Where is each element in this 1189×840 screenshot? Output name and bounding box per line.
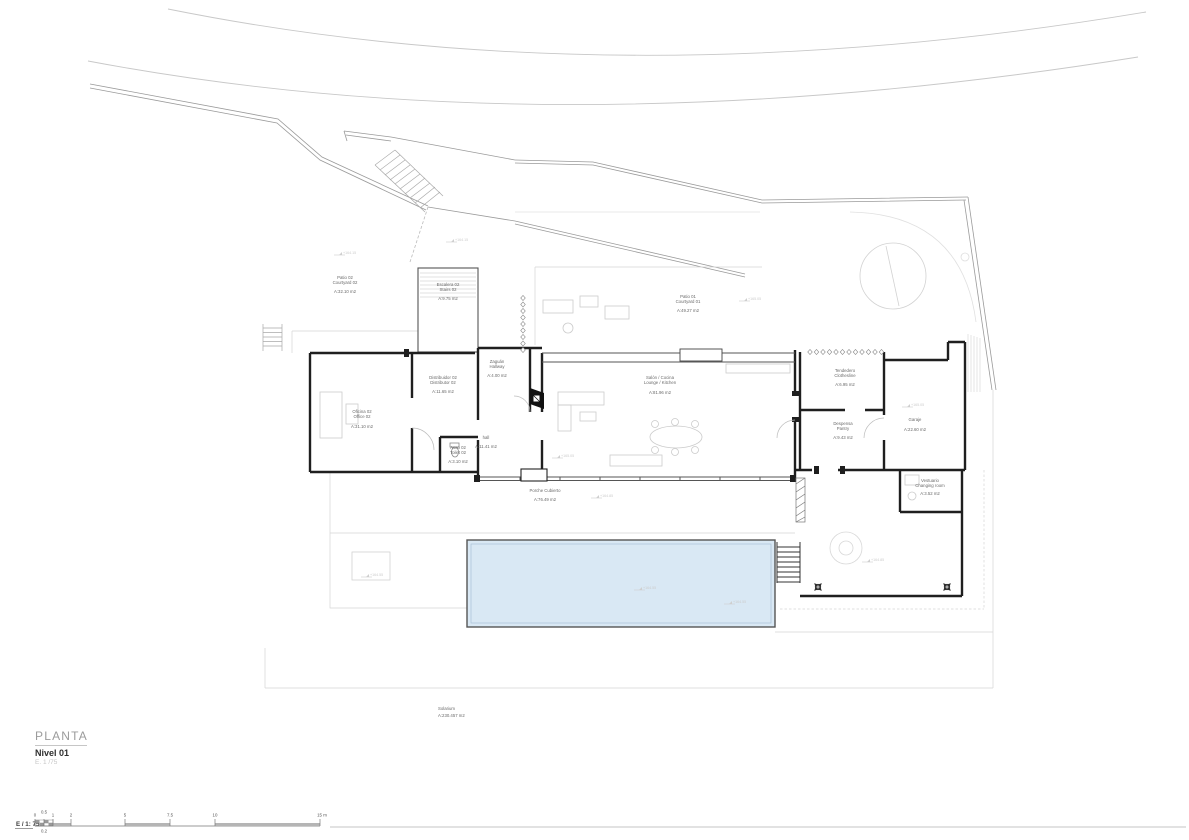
room-label-distribuidor-02: Distribuidor 02 Distributor 02 A:11.65 m… [429, 375, 457, 394]
room-label-aseo-02: Aseo 02 Toilet 02 A:3.10 m2 [448, 445, 468, 464]
room-name-en: Office 02 [353, 414, 371, 419]
plan-series-title: PLANTA [35, 729, 87, 746]
title-block: PLANTA Nivel 01 E. 1 /75 [35, 729, 155, 766]
door-jambs [404, 349, 845, 482]
hedge-hatch [968, 334, 980, 392]
level-marker-text: +165.05 [748, 297, 761, 301]
level-marker-text: +164.55 [733, 600, 746, 604]
room-name-en: Lounge / Kitchen [644, 380, 677, 385]
room-label-escalera-02: Escalera 02 Stairs 02 A:9.75 m2 [437, 282, 460, 301]
exterior-stairs-top [375, 150, 443, 212]
fence-chain-vertical [521, 295, 526, 352]
scale-tick: 15 m [317, 813, 327, 818]
site-contour-lines [88, 9, 1146, 105]
scale-tick: 0 [34, 813, 37, 818]
scale-tick: 5 [124, 813, 127, 818]
room-name-en: Toilet 02 [450, 450, 467, 455]
porch-step-block [521, 469, 547, 481]
level-marker-text: +164.85 [871, 558, 884, 562]
room-area: A:49.27 m2 [677, 308, 700, 313]
room-name: Garaje [909, 417, 923, 422]
room-label-patio-01: Patio 01 Courtyard 01 A:49.27 m2 [676, 294, 701, 313]
stairs-02-room [418, 268, 478, 352]
paving-flower-symbol [813, 582, 823, 592]
scale-sub-tick: 0.2 [41, 829, 48, 834]
hatched-wall-section [796, 478, 805, 522]
room-name-en: Courtyard 02 [333, 280, 358, 285]
room-name-en: Pantry [837, 426, 850, 431]
room-area: A:9.43 m2 [833, 435, 853, 440]
room-label-oficina-02: Oficina 02 Office 02 A:31.10 m2 [351, 409, 374, 429]
level-marker-text: +165.05 [911, 403, 924, 407]
room-area: A:11.41 m2 [475, 444, 497, 449]
room-area: A:4.00 m2 [487, 373, 507, 378]
scale-bar: E / 1: 75 0 0.5 1 2 5 7.5 10 [15, 810, 1186, 834]
room-name-en: Distributor 02 [430, 380, 456, 385]
level-marker-text: +164.55 [370, 573, 383, 577]
room-area: A:3.52 m2 [920, 491, 940, 496]
room-name-en: Changing room [915, 483, 945, 488]
room-label-solarium: Solarium A:230.457 m2 [438, 706, 465, 718]
tree-symbol [850, 212, 976, 322]
level-marker-text: +164.85 [600, 494, 613, 498]
room-area: A:9.75 m2 [438, 296, 458, 301]
room-area: A:230.457 m2 [438, 713, 465, 718]
room-label-tendedero: Tendedero Clothesline A:6.95 m2 [834, 368, 856, 387]
left-courtyard-stairs [263, 324, 282, 351]
furniture [320, 296, 919, 580]
room-label-salon-cocina: Salón / Cocina Lounge / Kitchen A:81.96 … [644, 375, 677, 395]
room-name: hall [483, 435, 490, 440]
drawing-sheet: +164.15 +164.15 +165.05 +165.05 +165.05 … [0, 0, 1189, 840]
room-label-vestuario: Vestuario Changing room A:3.52 m2 [915, 478, 945, 496]
room-label-zaguan: Zaguán Hallway A:4.00 m2 [487, 359, 507, 378]
room-labels: Patio 02 Courtyard 02 A:32.10 m2 Escaler… [333, 275, 946, 718]
room-label-patio-02: Patio 02 Courtyard 02 A:32.10 m2 [333, 275, 358, 294]
room-name-en: Courtyard 01 [676, 299, 701, 304]
room-area: A:6.95 m2 [835, 382, 855, 387]
room-area: A:81.96 m2 [649, 390, 672, 395]
level-marker-text: +165.05 [561, 454, 574, 458]
scale-tick: 7.5 [167, 813, 174, 818]
terrain-retaining-walls [90, 84, 515, 262]
room-name-en: Clothesline [834, 373, 856, 378]
terrace-stairs [777, 542, 800, 583]
swimming-pool [467, 540, 775, 627]
room-area: A:22.60 m2 [904, 427, 927, 432]
level-marker-text: +164.55 [643, 586, 656, 590]
room-area: A:76.49 m2 [534, 497, 557, 502]
plan-scale-note: E. 1 /75 [35, 759, 155, 766]
plan-level-title: Nivel 01 [35, 748, 155, 758]
fence-chain-horizontal [808, 349, 884, 354]
room-label-despensa: Despensa Pantry A:9.43 m2 [833, 421, 853, 440]
room-name: Porche Cubierto [529, 488, 561, 493]
room-name-en: Hallway [489, 364, 505, 369]
paving-flower-symbol [942, 582, 952, 592]
room-area: A:3.10 m2 [448, 459, 468, 464]
floor-plan-canvas: +164.15 +164.15 +165.05 +165.05 +165.05 … [0, 0, 1189, 840]
site-path-lines [515, 160, 996, 390]
level-marker-text: +164.15 [455, 238, 468, 242]
scale-tick: 1 [52, 813, 55, 818]
room-label-porche: Porche Cubierto A:76.49 m2 [529, 488, 561, 502]
scale-tick: 2 [70, 813, 73, 818]
room-name: Solarium [438, 706, 455, 711]
scale-tick: 0.5 [41, 810, 48, 815]
room-label-garaje: Garaje A:22.60 m2 [904, 417, 927, 432]
skylight-panel [680, 349, 722, 361]
room-name-en: Stairs 02 [440, 287, 458, 292]
lounge-glass-walls [475, 353, 795, 481]
room-area: A:32.10 m2 [334, 289, 357, 294]
door-swing-arcs [412, 396, 884, 450]
room-area: A:31.10 m2 [351, 424, 374, 429]
room-area: A:11.65 m2 [432, 389, 454, 394]
level-marker-text: +164.15 [343, 251, 356, 255]
scale-tick: 10 [213, 813, 218, 818]
